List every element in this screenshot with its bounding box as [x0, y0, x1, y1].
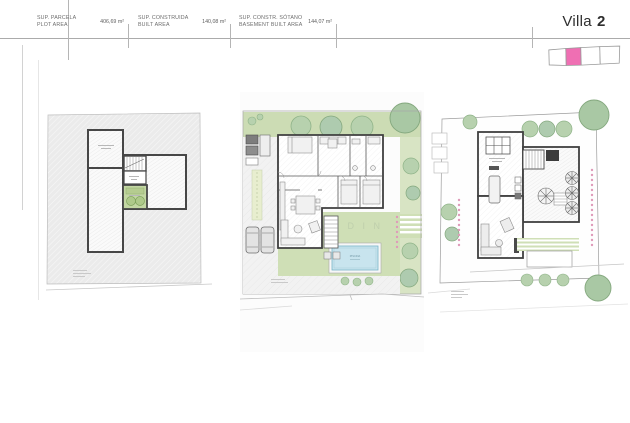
lift-shaft — [546, 150, 559, 161]
spiral-stair — [538, 188, 554, 204]
roof-street-line — [46, 284, 212, 290]
entry-path — [252, 170, 262, 220]
neighbour-plot-fragments — [432, 133, 448, 173]
garden-bushes — [341, 277, 373, 286]
island-table — [489, 176, 500, 203]
plan-sheet: SUP. PARCELA PLOT AREA 406,69 m² SUP. CO… — [0, 0, 630, 423]
roof-green-terrace — [123, 185, 147, 209]
counter-dark — [489, 166, 499, 170]
skylight-grid — [486, 137, 510, 154]
pool-label: PISCINA — [350, 254, 361, 258]
roof-stairs — [124, 156, 146, 171]
basement-plan — [428, 100, 628, 312]
garden-paving — [243, 276, 400, 294]
car-2 — [261, 227, 274, 253]
roof-landing — [124, 171, 146, 184]
pergola — [399, 214, 422, 238]
round-tables — [566, 172, 579, 215]
floor-plans-drawing: PISCINA J A R D I N — [0, 0, 630, 423]
ground-floor-plan: PISCINA J A R D I N — [240, 92, 424, 352]
car-1 — [246, 227, 259, 253]
roof-volume-b — [88, 168, 123, 252]
basement-plot-note — [451, 291, 468, 298]
roof-plan — [46, 113, 212, 290]
appliance-squares — [515, 177, 521, 199]
